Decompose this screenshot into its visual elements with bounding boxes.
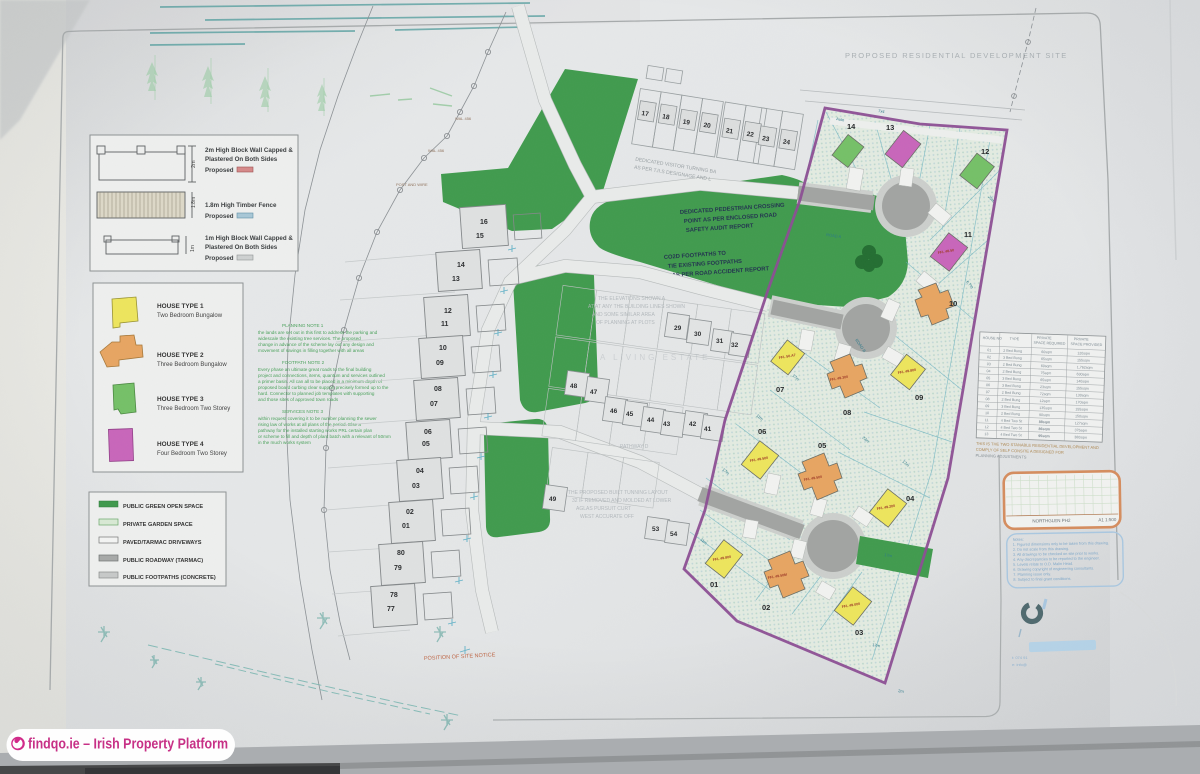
svg-text:findqo.ie – Irish Property Pla: findqo.ie – Irish Property Platform (28, 737, 228, 753)
